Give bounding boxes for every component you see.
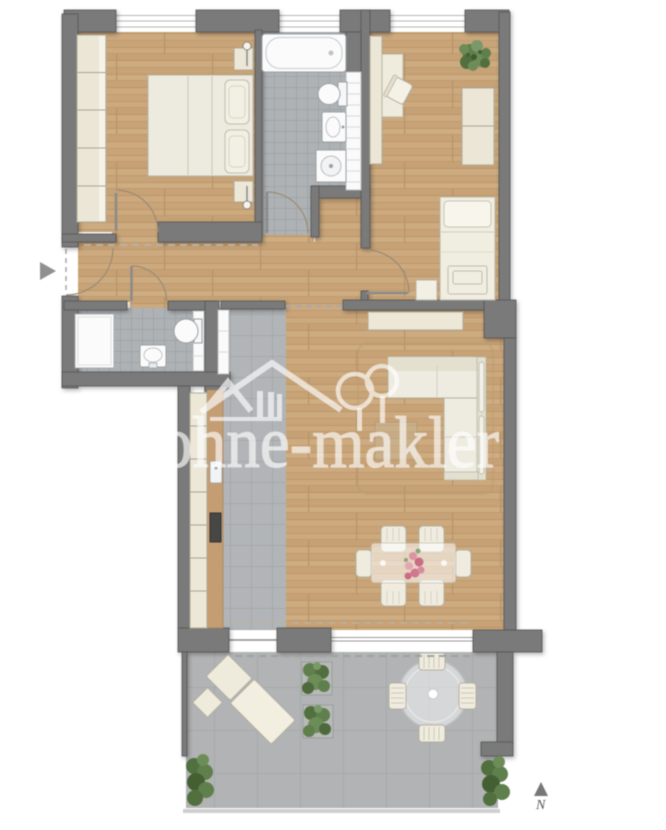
svg-text:N: N — [535, 798, 546, 813]
svg-text:ohne-makler: ohne-makler — [159, 402, 499, 483]
